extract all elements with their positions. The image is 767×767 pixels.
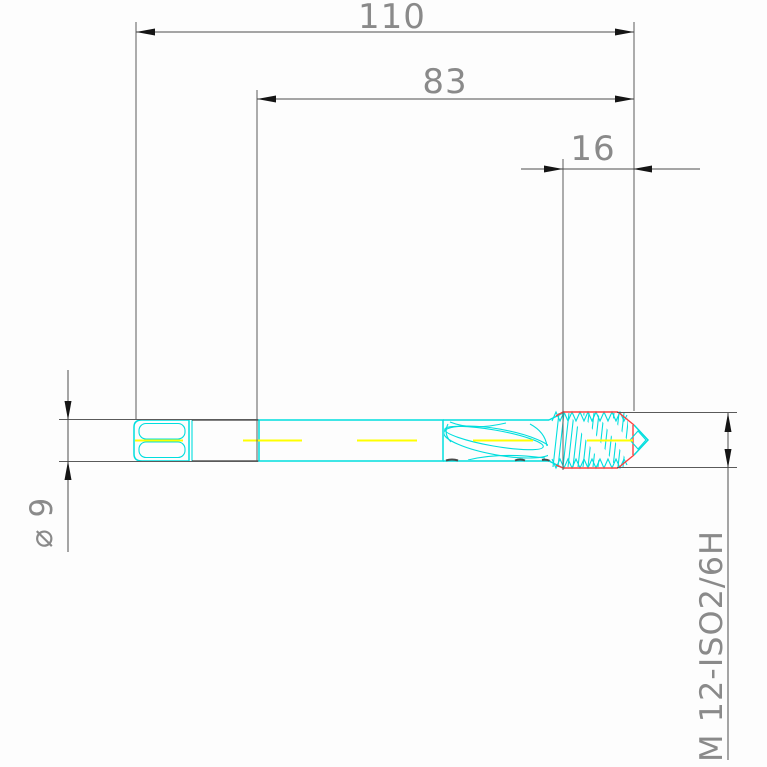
dimension-110-label: 110	[358, 0, 426, 37]
dimension-front-length: 83	[257, 62, 634, 461]
arrowhead-left	[257, 96, 276, 103]
arrowhead-right-outside	[633, 166, 652, 173]
dimension-16-label: 16	[570, 129, 615, 169]
square-flat-lower	[139, 442, 185, 458]
arrowhead-left-outside	[544, 166, 563, 173]
dimension-thread-spec-label: M 12-ISO2/6H	[694, 530, 730, 762]
arrowhead-right	[615, 96, 634, 103]
arrowhead-bottom-outside	[65, 461, 72, 480]
thread-red-chamfer-top	[618, 412, 634, 425]
arrowhead-up	[725, 413, 732, 432]
dimension-dia9-label: ⌀ 9	[24, 497, 60, 548]
arrowhead-left	[136, 29, 155, 36]
dimension-83-label: 83	[422, 62, 467, 102]
arrowhead-top-outside	[65, 401, 72, 420]
technical-drawing-svg: 110 83 16 ⌀ 9 M 12-ISO2/6H	[0, 0, 767, 767]
tap-flutes	[442, 420, 555, 465]
dimension-shank-diameter: ⌀ 9	[24, 370, 258, 552]
dimension-overall-length: 110	[136, 0, 634, 420]
square-flat-upper	[139, 424, 185, 440]
flute-smudge-1	[446, 460, 458, 461]
dimension-thread-spec: M 12-ISO2/6H	[617, 413, 737, 763]
flute-curves	[442, 420, 555, 465]
flute-smudge-2	[515, 460, 525, 461]
arrowhead-down	[725, 449, 732, 468]
drawing-canvas: 110 83 16 ⌀ 9 M 12-ISO2/6H	[0, 0, 767, 767]
arrowhead-right	[615, 29, 634, 36]
